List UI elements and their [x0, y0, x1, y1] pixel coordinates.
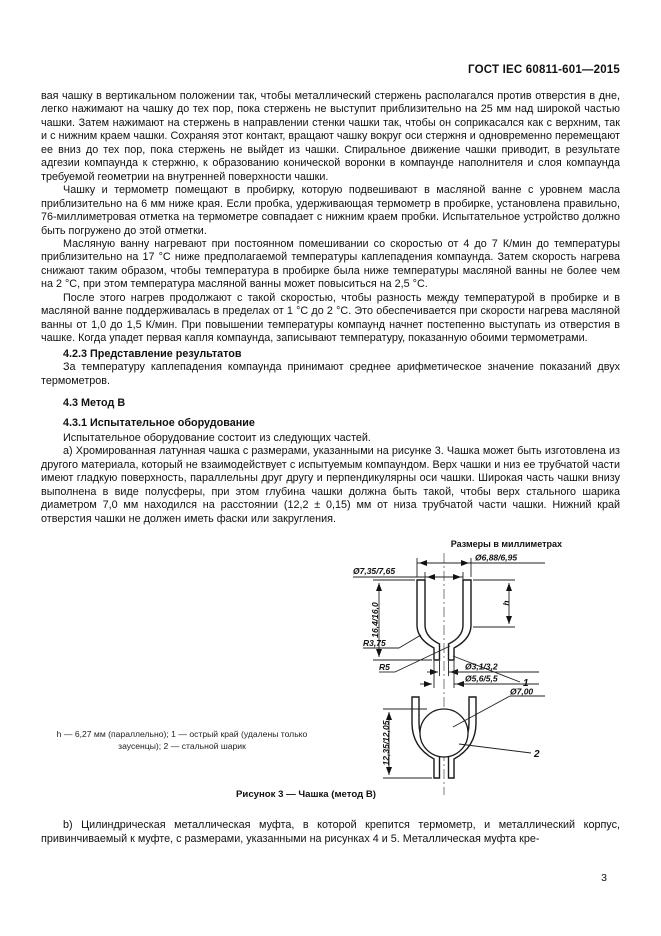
figure-legend: h — 6,27 мм (параллельно); 1 — острый кр…	[43, 729, 321, 752]
callout-2-steel-ball: 2	[533, 749, 540, 760]
text-column: вая чашку в вертикальном положении так, …	[41, 90, 620, 884]
cup-wall-left	[417, 580, 440, 660]
dimension-label-depth: 12,35/12,05	[381, 720, 391, 765]
cup-technical-drawing: Ø6,88/6,95 Ø7,35/7,65 16,4/16,0	[307, 547, 579, 803]
dimension-label-radius-outer: R3,75	[363, 638, 386, 648]
dimension-label-ball: Ø7,00	[510, 687, 533, 697]
cup-wall-right	[449, 580, 472, 660]
cup-with-ball-drawing: 12,35/12,05 Ø7,00 2	[381, 687, 545, 779]
cup-upper-section-drawing: Ø6,88/6,95 Ø7,35/7,65 16,4/16,0	[353, 553, 545, 690]
dimension-label-height: 16,4/16,0	[370, 602, 380, 638]
paragraph: b) Цилиндрическая металлическая муфта, в…	[41, 819, 620, 846]
legend-h-note: h — 6,27 мм (параллельно);	[57, 729, 172, 739]
page-number: 3	[41, 872, 620, 884]
paragraph: вая чашку в вертикальном положении так, …	[41, 90, 620, 184]
dimension-label-h: h	[501, 600, 511, 605]
heading-4-3-1: 4.3.1 Испытательное оборудование	[41, 417, 620, 430]
paragraph: Чашку и термометр помещают в пробирку, к…	[41, 184, 620, 238]
paragraph: а) Хромированная латунная чашка с размер…	[41, 445, 620, 526]
heading-4-2-3: 4.2.3 Представление результатов	[41, 348, 620, 361]
paragraph: После этого нагрев продолжают с такой ск…	[41, 292, 620, 346]
document-page: ГОСТ IEC 60811-601—2015 вая чашку в верт…	[0, 0, 661, 936]
paragraph: Масляную ванну нагревают при постоянном …	[41, 238, 620, 292]
figure-3-cup-drawing: Ø6,88/6,95 Ø7,35/7,65 16,4/16,0	[41, 551, 620, 809]
figure-caption: Рисунок 3 — Чашка (метод В)	[136, 789, 476, 800]
dimension-label-hole-inner: Ø3,1/3,2	[465, 662, 498, 672]
dimension-label-top-inner: Ø6,88/6,95	[475, 553, 517, 563]
dimension-label-radius-inner: R5	[379, 662, 390, 672]
dimension-label-hole-outer: Ø5,6/5,5	[465, 674, 498, 684]
paragraph: За температуру каплепадения компаунда пр…	[41, 361, 620, 388]
heading-4-3: 4.3 Метод В	[41, 397, 620, 410]
doc-code: ГОСТ IEC 60811-601—2015	[41, 64, 620, 76]
legend-note-2: 2 — стальной шарик	[164, 741, 246, 751]
steel-ball	[420, 709, 468, 757]
paragraph: Испытательное оборудование состоит из сл…	[41, 432, 620, 445]
dimension-label-top-outer: Ø7,35/7,65	[353, 566, 395, 576]
